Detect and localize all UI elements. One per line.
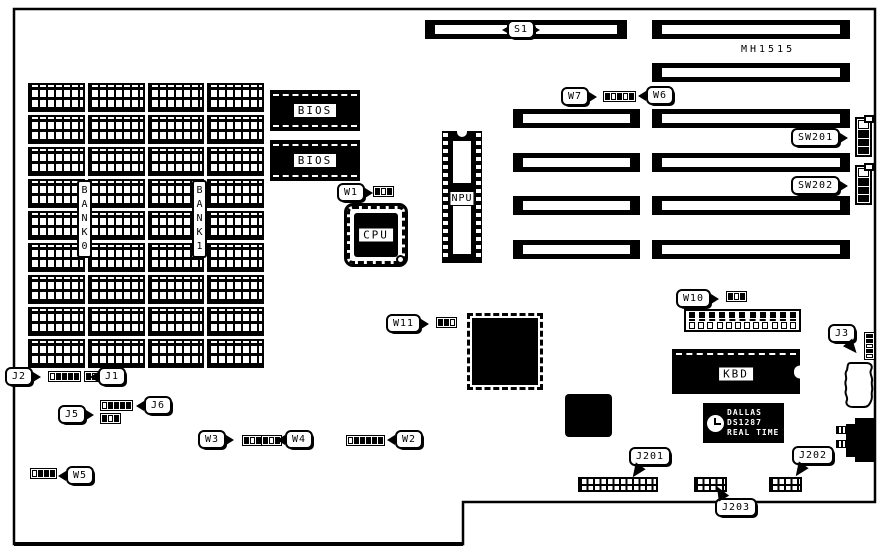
- memory-chip: [88, 307, 145, 336]
- chip-notch: [457, 131, 467, 137]
- memory-chip: [28, 307, 85, 336]
- callout-j201: J201: [629, 447, 671, 466]
- header-j5: [100, 413, 121, 424]
- switch-cell: [858, 147, 869, 154]
- keyboard-connector-step: [846, 424, 856, 457]
- callout-j3: J3: [828, 324, 856, 343]
- connector-tab: [836, 426, 847, 434]
- memory-chip: [207, 339, 264, 368]
- bank1-label: BANK1: [192, 180, 207, 258]
- expansion-slot: [652, 109, 850, 128]
- memory-chip: [207, 115, 264, 144]
- model-number-label: MH1515: [741, 44, 795, 55]
- memory-chip: [28, 275, 85, 304]
- pin: [750, 312, 756, 318]
- memory-chip: [148, 115, 205, 144]
- connector-pins-top: [689, 312, 796, 318]
- pin: [707, 322, 713, 329]
- memory-chip: [28, 115, 85, 144]
- header-w2: [346, 435, 385, 446]
- memory-chip: [28, 83, 85, 112]
- expansion-slot: [513, 240, 640, 259]
- pin: [717, 322, 723, 329]
- rtc-chip: DALLAS DS1287 REAL TIME: [703, 403, 784, 443]
- jumper-w10: [726, 291, 747, 302]
- memory-chip: [148, 307, 205, 336]
- bios-label: BIOS: [294, 154, 337, 167]
- pin: [772, 322, 778, 329]
- callout-w6: W6: [646, 86, 674, 105]
- connector-tab: [836, 440, 847, 448]
- callout-w5: W5: [66, 466, 94, 485]
- jumper-w11: [436, 317, 457, 328]
- expansion-slot: [513, 196, 640, 215]
- memory-chip: [207, 211, 264, 240]
- memory-chip: [88, 339, 145, 368]
- memory-chip: [207, 275, 264, 304]
- pin: [762, 322, 768, 329]
- expansion-slot: [652, 240, 850, 259]
- switch-cell: [858, 139, 869, 146]
- callout-j5: J5: [58, 405, 86, 424]
- memory-chip: [207, 83, 264, 112]
- memory-chip: [88, 243, 145, 272]
- callout-j2: J2: [5, 367, 33, 386]
- chip-stripe: [273, 175, 357, 177]
- pin: [729, 312, 735, 318]
- callout-w1: W1: [337, 183, 365, 202]
- chip-stripe: [676, 353, 796, 355]
- logic-chip: [565, 394, 612, 437]
- bios-label: BIOS: [294, 104, 337, 117]
- qfp-chip: [472, 318, 538, 385]
- memory-chip: [148, 275, 205, 304]
- memory-chip: [207, 179, 264, 208]
- bios-chip-bottom: BIOS: [270, 140, 360, 181]
- switch-flag: [864, 115, 874, 123]
- memory-chip: [28, 147, 85, 176]
- pin: [753, 322, 759, 329]
- jumper-w3: [242, 435, 263, 446]
- callout-j203: J203: [715, 498, 757, 517]
- memory-chip: [28, 339, 85, 368]
- dip-switch-sw201: [855, 117, 872, 157]
- socket-window: [453, 141, 471, 183]
- switch-cell: [858, 195, 869, 202]
- clock-icon: [707, 415, 724, 432]
- callout-w11: W11: [386, 314, 421, 333]
- pin: [790, 312, 796, 318]
- pin: [744, 322, 750, 329]
- rtc-part: DS1287: [727, 418, 779, 428]
- pin: [719, 312, 725, 318]
- memory-chip: [148, 147, 205, 176]
- header-j2: [48, 371, 81, 382]
- memory-chip: [148, 339, 205, 368]
- memory-chip: [207, 243, 264, 272]
- jumper-w6-w7: [603, 91, 636, 102]
- chip-stripe: [273, 94, 357, 96]
- cpu-socket: CPU: [344, 203, 408, 267]
- bios-chip-top: BIOS: [270, 90, 360, 131]
- kbd-label: KBD: [719, 367, 753, 380]
- pin: [790, 322, 796, 329]
- battery-outline: [841, 360, 877, 410]
- callout-sw202: SW202: [791, 176, 840, 195]
- switch-flag: [864, 163, 874, 171]
- chip-stripe: [273, 144, 357, 146]
- callout-w10: W10: [676, 289, 711, 308]
- memory-chip: [207, 147, 264, 176]
- callout-w7: W7: [561, 87, 589, 106]
- callout-j202: J202: [792, 446, 834, 465]
- pin: [770, 312, 776, 318]
- pin: [709, 312, 715, 318]
- memory-chip: [88, 83, 145, 112]
- header-j6: [100, 400, 133, 411]
- expansion-slot: [652, 196, 850, 215]
- pin: [739, 312, 745, 318]
- callout-s1: S1: [507, 20, 535, 39]
- bank0-label: BANK0: [77, 180, 92, 258]
- rtc-brand: DALLAS: [727, 408, 779, 418]
- expansion-slot: [652, 20, 850, 39]
- header-j3: [864, 332, 875, 360]
- connector-pins-bottom: [689, 319, 796, 329]
- callout-sw201: SW201: [791, 128, 840, 147]
- memory-chip: [207, 307, 264, 336]
- chip-stripe: [273, 125, 357, 127]
- npu-socket: NPU: [442, 131, 482, 263]
- chip-notch: [794, 365, 800, 378]
- pin: [760, 312, 766, 318]
- callout-j6: J6: [144, 396, 172, 415]
- npu-label: NPU: [449, 191, 474, 206]
- memory-chip: [148, 83, 205, 112]
- switch-cell: [858, 130, 869, 137]
- expansion-slot: [652, 153, 850, 172]
- switch-cell: [858, 178, 869, 185]
- callout-j1: J1: [98, 367, 126, 386]
- expansion-slot: [513, 153, 640, 172]
- dip-switch-sw202: [855, 165, 872, 205]
- pin: [781, 322, 787, 329]
- pin: [689, 312, 695, 318]
- rtc-type: REAL TIME: [727, 428, 779, 438]
- memory-chip: [88, 179, 145, 208]
- dip-pins: [443, 133, 448, 261]
- callout-w4: W4: [285, 430, 313, 449]
- expansion-slot: [652, 63, 850, 82]
- dip-pins: [476, 133, 481, 261]
- keyboard-connector: [855, 418, 875, 462]
- pin: [699, 312, 705, 318]
- memory-chip-array: [28, 83, 264, 368]
- switch-cell: [858, 187, 869, 194]
- cpu-label: CPU: [359, 229, 393, 242]
- callout-w2: W2: [395, 430, 423, 449]
- motherboard-diagram: MH1515 BANK0 BANK1 BIOS BIOS CPU NPU KBD: [0, 0, 887, 553]
- keyboard-controller-chip: KBD: [672, 349, 800, 394]
- rtc-text: DALLAS DS1287 REAL TIME: [727, 408, 779, 438]
- expansion-slot: [513, 109, 640, 128]
- pin1-dot: [396, 255, 405, 264]
- memory-chip: [88, 147, 145, 176]
- memory-chip: [88, 211, 145, 240]
- pin: [689, 322, 695, 329]
- header-j201: [578, 477, 658, 492]
- pin: [698, 322, 704, 329]
- pin: [726, 322, 732, 329]
- memory-chip: [88, 115, 145, 144]
- power-connector: [684, 309, 801, 332]
- pin: [735, 322, 741, 329]
- socket-window: [453, 206, 471, 254]
- memory-chip: [88, 275, 145, 304]
- pin: [780, 312, 786, 318]
- callout-w3: W3: [198, 430, 226, 449]
